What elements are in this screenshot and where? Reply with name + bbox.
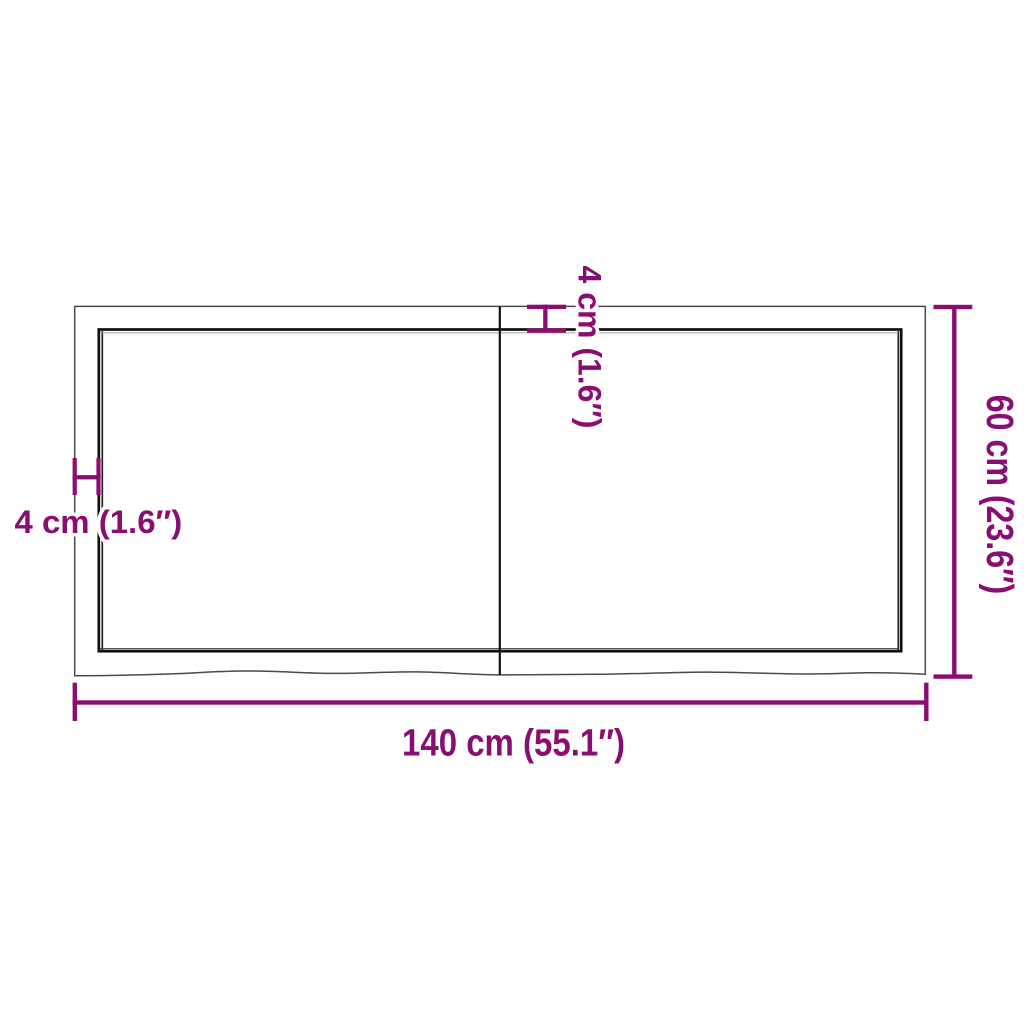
svg-text:4 cm (1.6″): 4 cm (1.6″)	[15, 505, 183, 540]
svg-text:4 cm (1.6″): 4 cm (1.6″)	[572, 266, 608, 429]
svg-text:60 cm (23.6″): 60 cm (23.6″)	[979, 395, 1021, 594]
svg-text:140 cm (55.1″): 140 cm (55.1″)	[402, 722, 625, 765]
